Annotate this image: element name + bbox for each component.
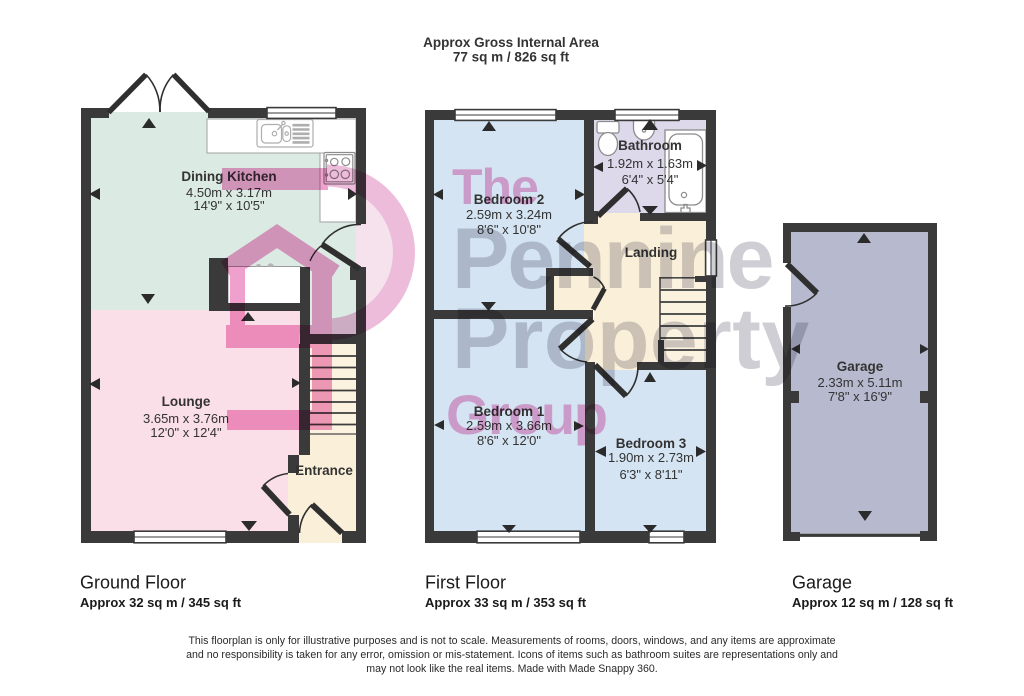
svg-text:7'8" x 16'9": 7'8" x 16'9"	[828, 389, 892, 404]
svg-text:Approx 12 sq m / 128 sq ft: Approx 12 sq m / 128 sq ft	[792, 595, 954, 610]
svg-text:3.65m x 3.76m: 3.65m x 3.76m	[143, 411, 229, 426]
svg-text:2.33m x 5.11m: 2.33m x 5.11m	[817, 375, 902, 390]
svg-text:First Floor: First Floor	[425, 573, 506, 593]
svg-text:Approx 32 sq m / 345 sq ft: Approx 32 sq m / 345 sq ft	[80, 595, 242, 610]
svg-text:and no responsibility is taken: and no responsibility is taken for any e…	[186, 649, 838, 661]
svg-text:Group: Group	[446, 383, 606, 446]
svg-text:1.90m x 2.73m: 1.90m x 2.73m	[608, 450, 694, 465]
svg-text:77 sq m / 826 sq ft: 77 sq m / 826 sq ft	[453, 50, 570, 65]
svg-text:Approx 33 sq m / 353 sq ft: Approx 33 sq m / 353 sq ft	[425, 595, 587, 610]
svg-text:Garage: Garage	[837, 359, 884, 374]
svg-text:Lounge: Lounge	[162, 394, 211, 409]
svg-text:Bedroom 3: Bedroom 3	[616, 436, 687, 451]
svg-text:12'0" x 12'4": 12'0" x 12'4"	[150, 425, 222, 440]
svg-text:6'3" x 8'11": 6'3" x 8'11"	[619, 467, 682, 482]
svg-text:Garage: Garage	[792, 573, 852, 593]
svg-text:The: The	[452, 159, 538, 215]
svg-text:Bathroom: Bathroom	[618, 138, 682, 153]
svg-text:Ground Floor: Ground Floor	[80, 573, 186, 593]
svg-text:Property: Property	[452, 291, 810, 387]
svg-text:14'9" x 10'5": 14'9" x 10'5"	[193, 198, 265, 213]
svg-text:6'4" x 5'4": 6'4" x 5'4"	[622, 172, 679, 187]
svg-text:This floorplan is only for ill: This floorplan is only for illustrative …	[188, 635, 835, 647]
svg-text:Approx Gross Internal Area: Approx Gross Internal Area	[423, 35, 599, 50]
svg-text:may not look like the real ite: may not look like the real items. Made w…	[366, 663, 657, 675]
svg-text:1.92m x 1.63m: 1.92m x 1.63m	[607, 156, 693, 171]
svg-text:Entrance: Entrance	[295, 463, 353, 478]
